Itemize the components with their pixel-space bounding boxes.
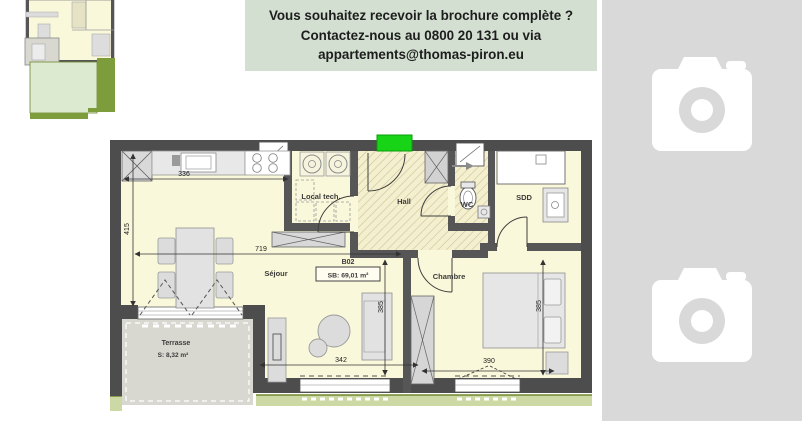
brochure-banner: Vous souhaitez recevoir la brochure comp…: [245, 0, 597, 71]
label-unit: B02: [342, 259, 355, 266]
label-sejour: Séjour: [264, 269, 287, 278]
floor-plan[interactable]: 336 415 719 342 390 385 385 Séjour Local…: [110, 134, 592, 414]
label-hall: Hall: [397, 197, 411, 206]
photo-placeholder-1[interactable]: [602, 0, 802, 210]
kitchen-tap: [172, 155, 180, 166]
photo-placeholder-2[interactable]: [602, 210, 802, 421]
wc-sink: [478, 206, 490, 218]
label-local-tech: Local tech.: [301, 192, 340, 201]
photo-panel: [602, 0, 802, 421]
entrance-marker: [377, 135, 412, 151]
thumb-hall: [72, 2, 86, 28]
label-wc: WC: [461, 200, 474, 209]
plan-thumbnail[interactable]: [24, 0, 116, 122]
dim-kitchen: 336: [178, 171, 190, 178]
dim-sejour: 719: [255, 246, 267, 253]
radiator: [268, 318, 286, 382]
listing-collage: Vous souhaitez recevoir la brochure comp…: [0, 0, 802, 421]
garden-strip-left: [110, 396, 122, 411]
shower: [497, 151, 565, 184]
banner-line-3: appartements@thomas-piron.eu: [245, 45, 597, 65]
floor-plan-graphic: 336 415 719 342 390 385 385 Séjour Local…: [110, 134, 592, 414]
label-terrasse-surface: S: 8,32 m²: [158, 352, 190, 359]
camera-icon: [650, 266, 754, 366]
dim-window-chambre: 390: [483, 358, 495, 365]
label-sdd: SDD: [516, 193, 532, 202]
label-chambre: Chambre: [433, 272, 466, 281]
banner-line-1: Vous souhaitez recevoir la brochure comp…: [245, 6, 597, 26]
thumb-garden: [30, 62, 97, 113]
dim-chambre-depth: 385: [536, 300, 543, 312]
dim-left: 415: [124, 223, 131, 235]
dim-sejour-depth: 385: [378, 301, 385, 313]
stove: [245, 151, 290, 175]
dim-window-sejour: 342: [335, 357, 347, 364]
plan-thumbnail-graphic: [24, 0, 116, 122]
thumb-bed: [92, 34, 110, 56]
label-surface: SB: 69,01 m²: [328, 273, 370, 280]
terrace-area: [122, 319, 253, 405]
label-terrasse: Terrasse: [162, 340, 191, 347]
thumb-garden-hedge: [97, 58, 115, 108]
banner-line-2: Contactez-nous au 0800 20 131 ou via: [245, 26, 597, 46]
camera-icon: [650, 55, 754, 155]
